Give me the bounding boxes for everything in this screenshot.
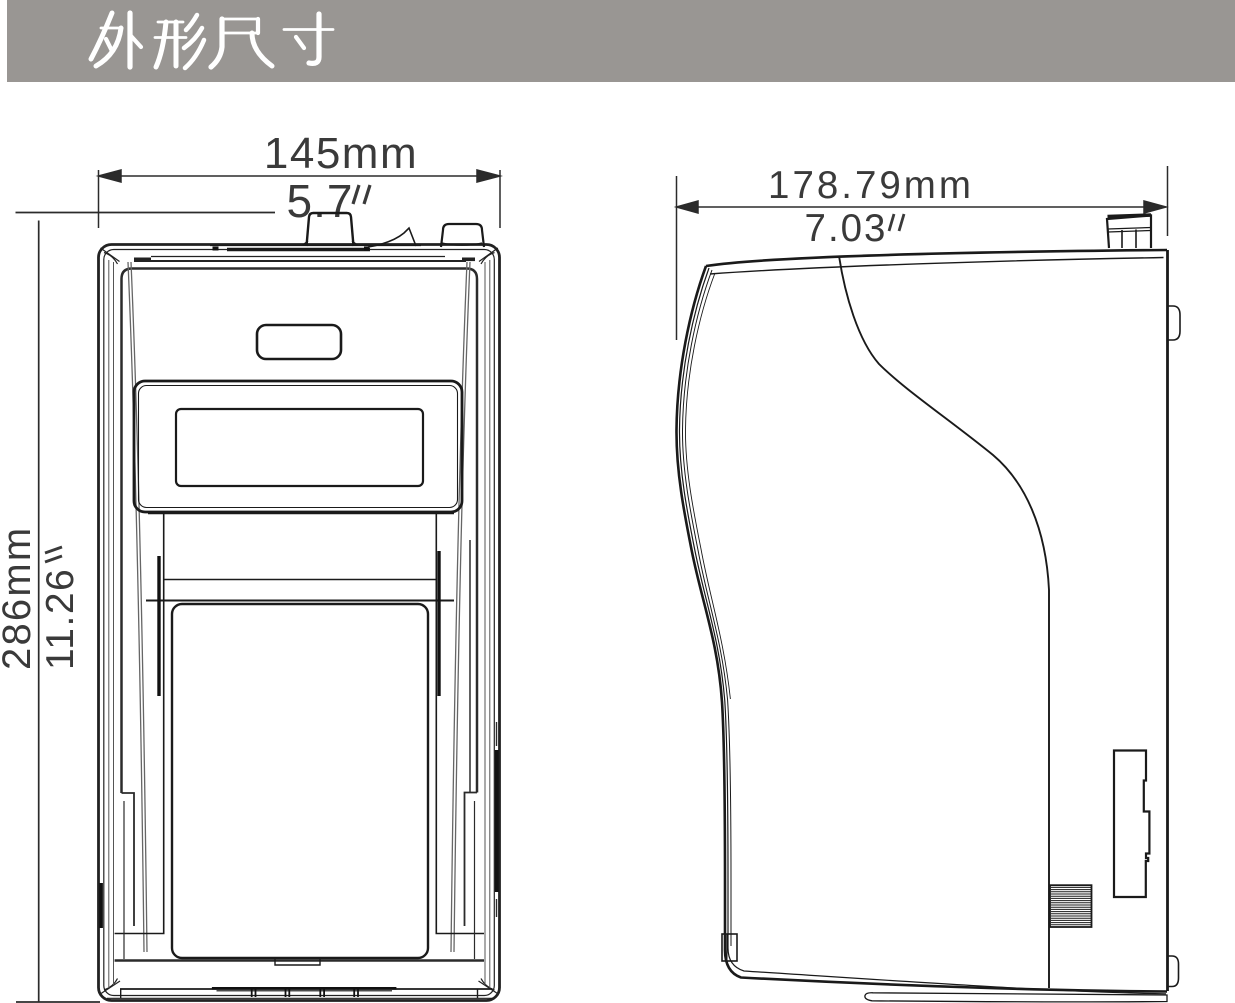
svg-text:7.03: 7.03 <box>805 207 888 250</box>
svg-text:145mm: 145mm <box>264 129 418 178</box>
svg-text:5.7: 5.7 <box>287 175 354 227</box>
svg-text:286mm: 286mm <box>0 526 39 670</box>
svg-text:11.26: 11.26 <box>39 568 82 670</box>
svg-text:178.79mm: 178.79mm <box>768 164 974 207</box>
